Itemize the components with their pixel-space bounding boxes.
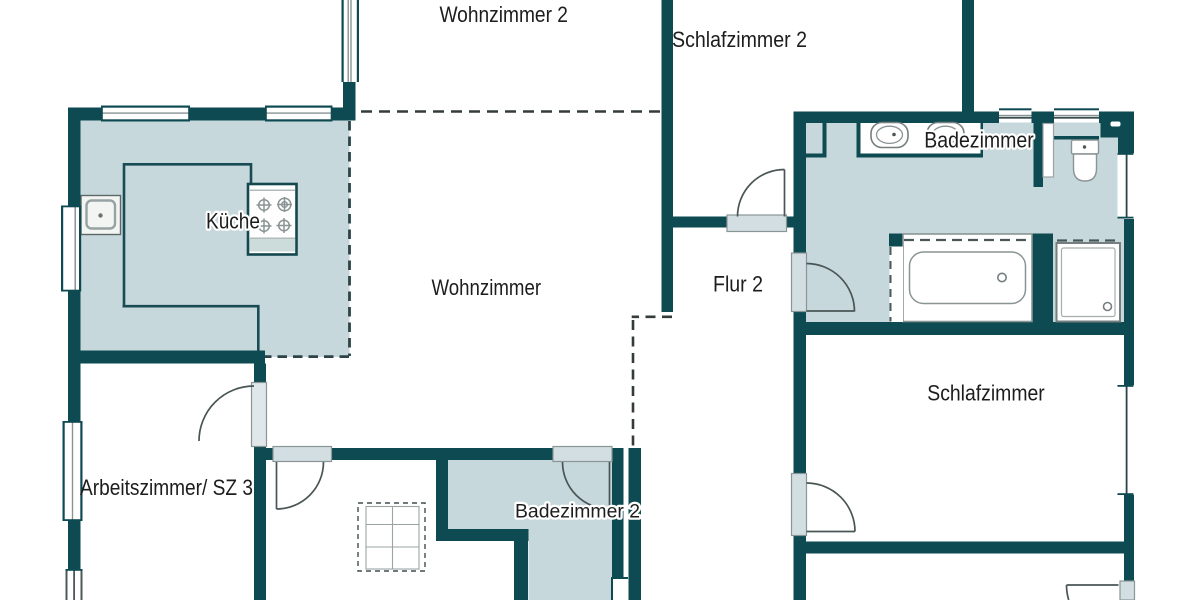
svg-text:Arbeitszimmer/ SZ 3: Arbeitszimmer/ SZ 3 <box>80 475 253 500</box>
svg-text:Küche: Küche <box>206 209 260 234</box>
svg-text:Flur 2: Flur 2 <box>713 272 763 297</box>
svg-text:Badezimmer: Badezimmer <box>924 128 1034 153</box>
svg-text:Schlafzimmer 2: Schlafzimmer 2 <box>672 27 807 52</box>
svg-text:Wohnzimmer 2: Wohnzimmer 2 <box>439 2 568 27</box>
svg-text:Schlafzimmer: Schlafzimmer <box>927 381 1045 406</box>
svg-text:Wohnzimmer: Wohnzimmer <box>432 275 542 300</box>
svg-text:Badezimmer 2: Badezimmer 2 <box>515 502 640 523</box>
